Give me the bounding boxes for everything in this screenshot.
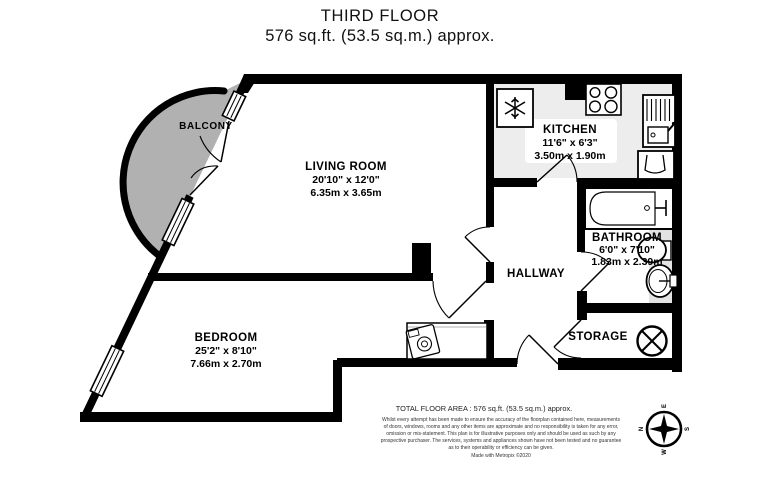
disclaimer: Whilst every attempt has been made to en…: [381, 417, 622, 451]
kitchen-sink-icon: [643, 95, 675, 147]
bathroom-dims-metric: 1.83m x 2.39m: [591, 256, 662, 268]
svg-text:E: E: [662, 404, 668, 408]
bedroom-door: [433, 281, 486, 318]
bathroom-label: BATHROOM: [592, 232, 662, 244]
fridge-icon: [497, 89, 533, 127]
entrance-door: [517, 335, 558, 364]
credit-line: Made with Metropix ©2020: [471, 452, 531, 459]
compass-icon: N E S W: [639, 404, 691, 455]
svg-text:prospective purchaser. The ser: prospective purchaser. The services, sys…: [381, 438, 622, 444]
bathroom-dims-imperial: 6'0" x 7'10": [599, 244, 655, 256]
svg-text:as to their operability or eff: as to their operability or efficiency ca…: [448, 445, 553, 451]
bedroom-dims-metric: 7.66m x 2.70m: [190, 358, 261, 370]
balcony-label: BALCONY: [179, 121, 233, 132]
svg-text:Whilst every attempt has been: Whilst every attempt has been made to en…: [382, 417, 620, 423]
total-floor-area: TOTAL FLOOR AREA : 576 sq.ft. (53.5 sq.m…: [396, 404, 573, 413]
kitchen-dims-metric: 3.50m x 1.90m: [534, 150, 605, 162]
hallway-label: HALLWAY: [507, 268, 565, 280]
svg-text:omission or mis-statement. Thi: omission or mis-statement. This plan is …: [386, 431, 616, 437]
bedroom-dims-imperial: 25'2" x 8'10": [195, 345, 257, 357]
page-subtitle: 576 sq.ft. (53.5 sq.m.) approx.: [265, 27, 494, 45]
oven-icon: [638, 151, 674, 179]
svg-text:S: S: [685, 427, 691, 431]
svg-text:of doors, windows, rooms and a: of doors, windows, rooms and any other i…: [384, 424, 619, 430]
closet: [406, 323, 487, 359]
appliance-icon: [406, 324, 440, 359]
water-tank-icon: [638, 327, 667, 356]
kitchen-dims-imperial: 11'6" x 6'3": [542, 137, 597, 149]
floorplan-page: BALCONY LIVING ROOM 20'10" x 12'0" 6.35m…: [0, 0, 760, 502]
svg-text:W: W: [662, 449, 668, 455]
bedroom-window: [90, 346, 123, 397]
bedroom-label: BEDROOM: [195, 332, 258, 344]
svg-text:N: N: [639, 427, 645, 431]
kitchen-label: KITCHEN: [543, 124, 597, 136]
living-room-dims-imperial: 20'10" x 12'0": [312, 174, 380, 186]
floorplan: BALCONY LIVING ROOM 20'10" x 12'0" 6.35m…: [0, 0, 760, 502]
living-room-dims-metric: 6.35m x 3.65m: [310, 187, 381, 199]
bathtub-icon: [585, 188, 673, 229]
living-room-label: LIVING ROOM: [305, 161, 387, 173]
storage-label: STORAGE: [568, 331, 627, 343]
living-room-door: [465, 227, 490, 262]
page-title: THIRD FLOOR: [321, 7, 439, 25]
